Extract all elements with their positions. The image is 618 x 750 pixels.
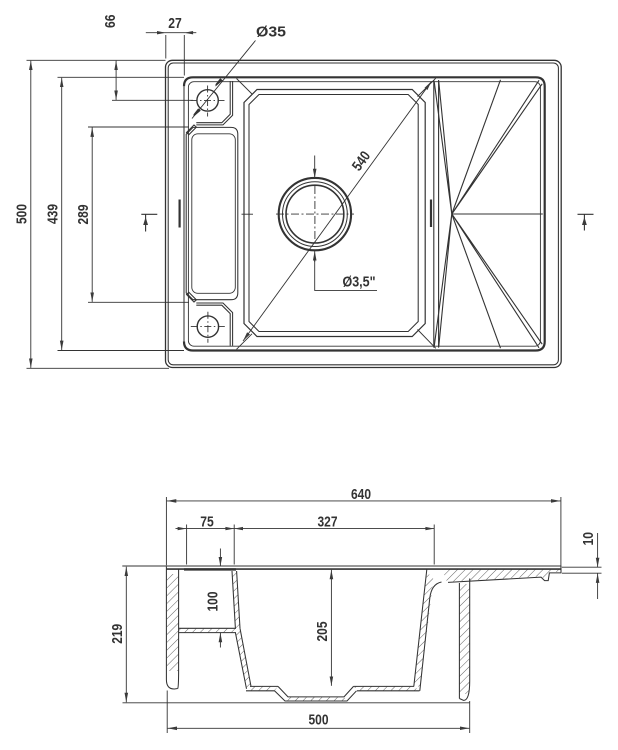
svg-text:100: 100 — [205, 592, 221, 612]
svg-text:27: 27 — [168, 16, 182, 32]
svg-text:500: 500 — [15, 204, 31, 224]
svg-text:640: 640 — [351, 487, 371, 503]
svg-text:439: 439 — [45, 204, 61, 224]
svg-text:289: 289 — [76, 205, 92, 225]
svg-text:540: 540 — [349, 149, 374, 175]
svg-text:Ø35: Ø35 — [256, 25, 286, 41]
svg-text:205: 205 — [315, 622, 331, 642]
svg-text:Ø3,5": Ø3,5" — [343, 275, 376, 291]
svg-text:10: 10 — [581, 532, 597, 546]
svg-text:66: 66 — [103, 15, 119, 29]
svg-text:75: 75 — [200, 515, 214, 531]
svg-text:327: 327 — [318, 515, 338, 531]
svg-text:500: 500 — [309, 713, 329, 729]
svg-text:219: 219 — [110, 624, 126, 644]
